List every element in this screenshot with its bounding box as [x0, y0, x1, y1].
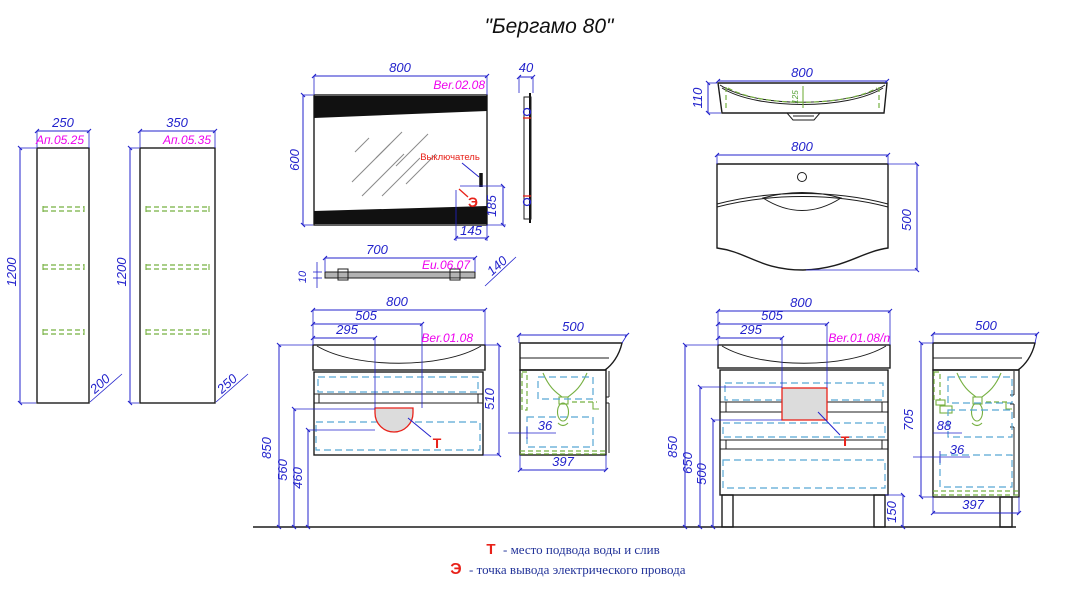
dim-depth: 140 — [484, 252, 511, 278]
dim-width: 800 — [386, 294, 408, 309]
dim-legs: 150 — [884, 500, 899, 522]
dim-705: 705 — [901, 408, 916, 430]
dim-bottom-width: 397 — [552, 454, 574, 469]
product-code: Eu.06.07 — [422, 258, 471, 272]
product-code: Ап.05.25 — [35, 133, 84, 147]
dim-basin-depth: 125 — [791, 90, 800, 104]
vanity-side-view: 36 500 397 — [508, 319, 627, 470]
vanity-front-view: Т 800 505 295 Ber.01.08 510 850 560 460 — [259, 294, 499, 527]
drawing-sheet: "Бергамо 80" 250 Ап.05.25 1200 200 — [0, 0, 1083, 590]
drawer-3 — [723, 460, 885, 488]
drawer-1-side — [948, 377, 1012, 403]
product-code: Ап.05.35 — [162, 133, 211, 147]
wall-bracket — [936, 400, 945, 405]
page-title: "Бергамо 80" — [484, 15, 615, 38]
dim-width: 500 — [975, 318, 997, 333]
drawer-3-side — [940, 455, 1012, 487]
dim-width: 500 — [562, 319, 584, 334]
basin-bowl — [763, 193, 841, 211]
mirror-glass-hatch — [352, 132, 436, 196]
vanity-n-side-view: 88 36 500 705 397 — [901, 318, 1037, 527]
product-code: Ber.02.08 — [433, 78, 485, 92]
dim-depth: 500 — [899, 208, 914, 230]
dim-width: 700 — [366, 242, 388, 257]
mirror-bottom-band — [314, 206, 487, 224]
dim-thickness: 10 — [297, 270, 309, 283]
dim-width: 350 — [166, 115, 188, 130]
dim-width: 800 — [791, 65, 813, 80]
dim-width: 800 — [790, 295, 812, 310]
shelf-lines — [146, 207, 209, 334]
dim-height: 600 — [287, 148, 302, 170]
leg — [1000, 497, 1012, 527]
water-mark: Т — [433, 435, 442, 451]
dim-height: 1200 — [4, 257, 19, 287]
drawer-2 — [723, 423, 885, 437]
dim-height: 1200 — [114, 257, 129, 287]
drawer-1 — [318, 377, 478, 392]
vanity-n-front-view: Т 800 505 295 Ber.01.08/n 850 650 500 15… — [665, 295, 903, 527]
mirror-top-band — [314, 96, 487, 118]
legend-e-symbol: Э — [450, 561, 461, 578]
dim-560: 560 — [275, 458, 290, 480]
sink-top-view: 800 500 — [717, 139, 917, 270]
shelf-lines — [43, 207, 84, 334]
dim-295: 295 — [739, 322, 762, 337]
dim-width: 250 — [51, 115, 74, 130]
dim-depth: 250 — [213, 370, 240, 397]
dim-88: 88 — [937, 418, 952, 433]
faucet-hole — [798, 173, 807, 182]
water-supply-zone — [375, 408, 413, 432]
tall-cabinet-250-view: 250 Ап.05.25 1200 200 — [4, 115, 122, 403]
product-code: Ber.01.08 — [421, 331, 473, 345]
dim-width: 800 — [389, 60, 411, 75]
electric-point — [452, 182, 460, 190]
dim-height: 510 — [482, 387, 497, 409]
switch-label: Выключатель — [420, 152, 480, 163]
dim-850: 850 — [259, 436, 274, 458]
dim-36: 36 — [538, 418, 553, 433]
legend: Т - место подвода воды и слив Э - точка … — [450, 541, 685, 578]
leg-left — [722, 495, 733, 527]
dim-460: 460 — [290, 466, 305, 488]
legend-e-text: - точка вывода электрического провода — [469, 562, 686, 577]
water-supply-zone — [782, 388, 827, 420]
dim-295: 295 — [335, 322, 358, 337]
water-mark: Т — [841, 433, 850, 449]
legend-t-text: - место подвода воды и слив — [503, 542, 660, 557]
product-code: Ber.01.08/n — [828, 331, 890, 345]
dim-650: 650 — [680, 451, 695, 473]
mirror-side-view: 40 — [519, 60, 534, 223]
electric-symbol: Э — [468, 194, 478, 210]
technical-drawing: "Бергамо 80" 250 Ап.05.25 1200 200 — [0, 0, 1083, 590]
plumbing-schematic — [933, 372, 1019, 495]
dim-bottom-width: 397 — [962, 497, 984, 512]
dim-500: 500 — [694, 462, 709, 484]
shelf-view: 700 Eu.06.07 10 140 — [297, 242, 516, 288]
dim-depth: 200 — [86, 370, 113, 397]
dim-width: 800 — [791, 139, 813, 154]
dim-850: 850 — [665, 435, 680, 457]
sink-profile-view: 125 800 110 — [690, 65, 887, 120]
dim-36: 36 — [950, 442, 965, 457]
shelf-end-brackets — [43, 206, 84, 335]
tall-cabinet-350-view: 350 Ап.05.35 1200 250 — [114, 115, 248, 403]
dim-505: 505 — [761, 308, 783, 323]
legend-t-symbol: Т — [486, 541, 495, 558]
dim-505: 505 — [355, 308, 377, 323]
dim-185: 185 — [484, 194, 499, 216]
dim-145: 145 — [460, 223, 482, 238]
shelf-end-brackets — [146, 206, 209, 335]
dim-side-width: 40 — [519, 60, 534, 75]
dim-height: 110 — [690, 87, 705, 108]
mirror-front-view: 800 Ber.02.08 600 Выключатель Э 185 145 — [287, 60, 506, 241]
